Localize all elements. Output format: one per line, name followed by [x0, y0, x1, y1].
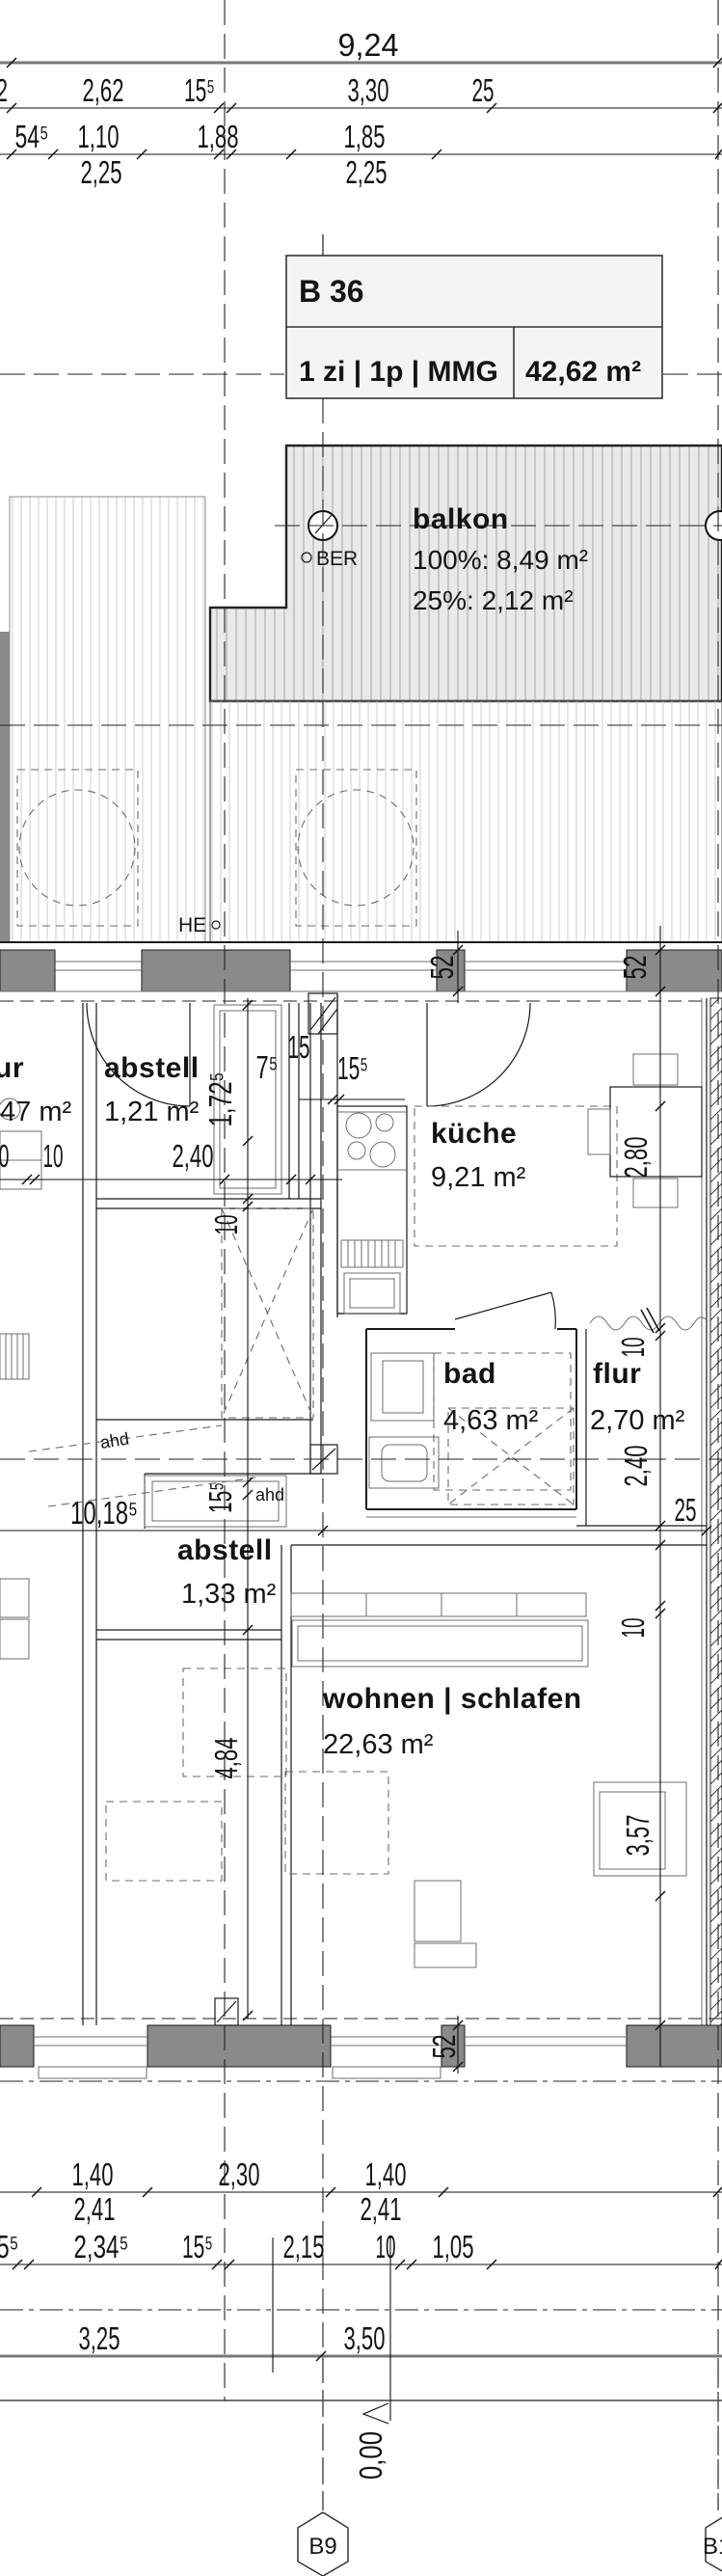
balcony-neighbor-deck: [0, 497, 205, 942]
exterior-wall-top: [0, 942, 722, 1001]
room-label-flur: flur: [593, 1358, 641, 1390]
dim-bot-a2: 1,40: [365, 2156, 407, 2192]
ahd-label-1: ahd: [98, 1428, 130, 1451]
dim-shaft-h: 1,72⁵: [202, 1072, 238, 1127]
dim-h25: 25: [675, 1492, 697, 1528]
wall-break-wavy-icon: [590, 1308, 708, 1333]
dim-top-sill-1: 2,25: [346, 154, 388, 190]
dim-v10a: 10: [208, 1215, 244, 1235]
unit-id: B 36: [299, 274, 364, 309]
neighbor-furniture-dashed-2: [106, 1802, 222, 1881]
room-label-wohnen: wohnen | schlafen: [322, 1683, 582, 1715]
title-box: B 36 1 zi | 1p | MMG 42,62 m²: [286, 234, 662, 398]
dim-v357: 3,57: [620, 1815, 655, 1857]
dim-bot-c4: 10: [376, 2229, 396, 2264]
dim-bot-c3: 2,15: [283, 2229, 325, 2264]
dim-v10c: 10: [615, 1618, 651, 1639]
balcony-lower-deck: [210, 701, 722, 942]
wardrobe: [291, 1593, 588, 1667]
dim-top-r2-2: 15⁵: [184, 72, 215, 108]
dim-v155: 15⁵: [202, 1482, 238, 1513]
dining-table-set: [588, 1054, 702, 1207]
dim-155: 15⁵: [337, 1050, 368, 1086]
bed-dashed: [285, 1772, 388, 1874]
room-label-kueche: küche: [431, 1118, 517, 1150]
grid-bubble-right-label: B1: [703, 2534, 722, 2560]
dim-v484: 4,84: [208, 1738, 244, 1779]
unit-area: 42,62 m²: [525, 356, 641, 388]
dim-top-r3-1: 1,10: [78, 119, 120, 154]
dim-bot-a1: 2,30: [219, 2156, 260, 2192]
dim-bot-a0: 1,40: [72, 2156, 114, 2192]
dim-kitchen-offset: 10: [43, 1138, 64, 1174]
floorplan-sheet: B 36 1 zi | 1p | MMG 42,62 m²: [0, 0, 722, 2576]
level-value: 0,00: [353, 2431, 388, 2480]
desk: [414, 1881, 476, 1967]
dim-top-sill-0: 2,25: [81, 154, 122, 190]
dim-52-bottom: 52: [426, 2035, 462, 2059]
dim-bot-d0: 3,25: [79, 2320, 120, 2356]
he-label: HE: [178, 914, 206, 936]
dim-52-right: 52: [617, 956, 653, 980]
balcony-label: balkon: [413, 503, 509, 535]
dim-top-r2-4: 25: [472, 72, 495, 108]
dim-top-r3-0: 54⁵: [15, 119, 49, 154]
radiator: [0, 1334, 29, 1379]
door-swing-bad: [455, 1292, 555, 1329]
dim-total-width: 10,18⁵: [70, 1495, 138, 1531]
dim-v240: 2,40: [618, 1446, 654, 1487]
balcony-area-100: 100%: 8,49 m²: [413, 545, 588, 575]
dim-bot-c2: 15⁵: [182, 2229, 213, 2264]
room-area-abstell2: 1,33 m²: [181, 1579, 277, 1610]
dim-left-cut: 0: [0, 1138, 10, 1174]
dim-bot-d1: 3,50: [344, 2320, 386, 2356]
dim-kitchen-width: 2,40: [173, 1138, 214, 1174]
wc: [369, 1437, 439, 1488]
balcony-area-25: 25%: 2,12 m²: [413, 585, 574, 615]
ber-label: BER: [316, 548, 358, 570]
door-swing-entry: [427, 1003, 530, 1106]
grid-bubble-b9-label: B9: [308, 2534, 336, 2560]
dim-bot-c5: 1,05: [433, 2229, 474, 2264]
dim-52-left: 52: [424, 956, 460, 980]
room-label-abstell2: abstell: [177, 1534, 273, 1566]
room-label-abstell1: abstell: [104, 1052, 200, 1084]
floorplan-drawing: B 36 1 zi | 1p | MMG 42,62 m²: [0, 0, 722, 2576]
dim-top-r2-1: 2,62: [83, 72, 124, 108]
ahd-label-2: ahd: [255, 1485, 284, 1505]
dim-15: 15: [288, 1029, 310, 1065]
dim-bot-c0: 5⁵: [0, 2229, 19, 2264]
room-area-flur: 2,70 m²: [590, 1405, 685, 1436]
shower-symbol-neighbor: [222, 1208, 313, 1418]
dim-bot-a2-1: 2,41: [361, 2191, 402, 2227]
dim-top-r3-3: 1,85: [344, 119, 386, 154]
dim-v10b: 10: [615, 1338, 651, 1358]
dim-75: 7⁵: [256, 1049, 279, 1085]
dim-bot-c1: 2,34⁵: [74, 2229, 129, 2264]
room-label-bad: bad: [443, 1358, 496, 1390]
dim-top-total: 9,24: [338, 27, 399, 63]
room-area-bad: 4,63 m²: [443, 1405, 539, 1436]
exterior-wall-bottom: [0, 2019, 722, 2078]
washbasin: [371, 1353, 434, 1421]
dim-bot-a2-0: 2,41: [74, 2191, 116, 2227]
room-area-kueche: 9,21 m²: [431, 1162, 526, 1193]
room-area-left-partial: 47 m²: [0, 1097, 71, 1127]
room-label-left-partial: ur: [0, 1052, 24, 1084]
dim-v280: 2,80: [618, 1137, 654, 1179]
dim-top-r3-2: 1,88: [198, 119, 239, 154]
room-area-abstell1: 1,21 m²: [104, 1097, 200, 1127]
room-area-wohnen: 22,63 m²: [323, 1729, 434, 1760]
dim-top-r2-3: 3,30: [348, 72, 389, 108]
dim-top-r2-0: 2: [0, 72, 8, 108]
cabinet-left-edge: [0, 1579, 29, 1659]
unit-type: 1 zi | 1p | MMG: [299, 356, 498, 388]
party-wall-right: [702, 998, 722, 2025]
kitchen-counter: [337, 1106, 407, 1314]
